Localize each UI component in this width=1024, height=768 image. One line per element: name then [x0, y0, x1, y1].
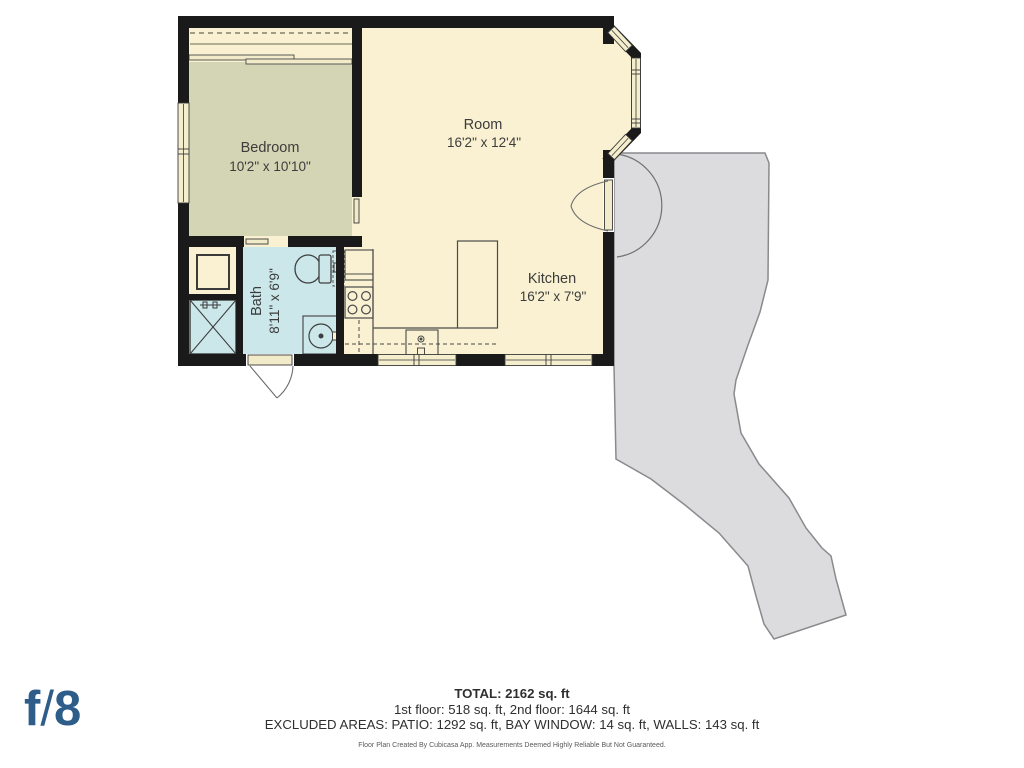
bedroom-label: Bedroom — [241, 140, 300, 156]
laundry-unit — [197, 255, 229, 289]
wall-bottom-3 — [456, 354, 505, 366]
footer-area: TOTAL: 2162 sq. ft 1st floor: 518 sq. ft… — [0, 686, 1024, 749]
bath-label: Bath — [249, 286, 265, 316]
door-bath-pocket-leaf — [246, 239, 268, 244]
wall-right-bottom — [603, 232, 614, 366]
excluded-areas-text: EXCLUDED AREAS: PATIO: 1292 sq. ft, BAY … — [0, 717, 1024, 733]
kitchen-dims: 16'2" x 7'9" — [520, 289, 587, 304]
floorplan-svg: Bedroom 10'2" x 10'10" Room 16'2" x 12'4… — [0, 0, 1024, 768]
bedroom-dims: 10'2" x 10'10" — [229, 159, 311, 174]
closet-slider-right — [246, 59, 352, 64]
wall-bedroom-bottom-1 — [178, 236, 244, 247]
window-kitchen-1 — [378, 355, 456, 366]
floor-areas-text: 1st floor: 518 sq. ft, 2nd floor: 1644 s… — [0, 702, 1024, 718]
room-label: Room — [464, 117, 503, 133]
kitchen-label: Kitchen — [528, 271, 576, 287]
door-bath-swing — [250, 366, 293, 398]
stove-icon — [345, 287, 373, 318]
door-bath-exterior — [246, 354, 294, 398]
wall-bedroom-right — [352, 16, 362, 197]
wall-bottom-1 — [178, 354, 246, 366]
wall-laundry-right — [236, 247, 243, 354]
window-bedroom-left — [178, 103, 189, 203]
disclaimer-text: Floor Plan Created By Cubicasa App. Meas… — [0, 742, 1024, 749]
wall-laundry-shower — [189, 294, 243, 300]
door-bedroom-leaf — [354, 199, 359, 223]
wall-bottom-2 — [294, 354, 378, 366]
total-area-text: TOTAL: 2162 sq. ft — [0, 686, 1024, 702]
wall-bedroom-bottom-2 — [288, 236, 362, 247]
patio-shape — [614, 153, 846, 639]
bay-window-glass-center — [632, 58, 641, 128]
wall-bath-right — [336, 247, 344, 354]
room-dims: 16'2" x 12'4" — [447, 135, 521, 150]
window-kitchen-2 — [505, 355, 592, 366]
patio-area — [614, 153, 846, 639]
floorplan-page: Bedroom 10'2" x 10'10" Room 16'2" x 12'4… — [0, 0, 1024, 768]
fridge-icon — [345, 250, 373, 280]
wall-top — [178, 16, 614, 28]
bath-dims: 8'11" x 6'9" — [267, 268, 282, 334]
